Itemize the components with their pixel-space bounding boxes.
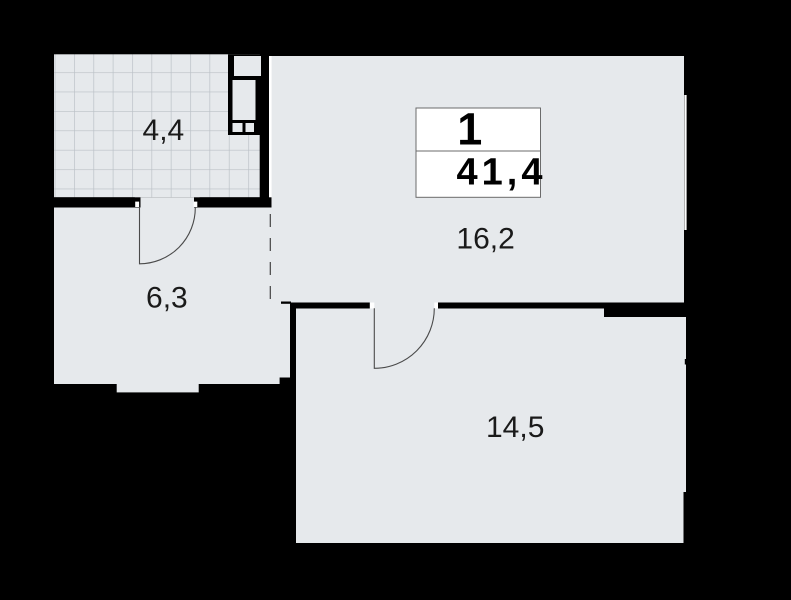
svg-text:16,2: 16,2 [456, 222, 514, 255]
svg-text:1: 1 [457, 103, 482, 154]
svg-text:41,4: 41,4 [457, 152, 547, 194]
svg-text:6,3: 6,3 [146, 281, 188, 314]
svg-text:4,4: 4,4 [143, 114, 185, 147]
svg-text:14,5: 14,5 [486, 411, 544, 444]
